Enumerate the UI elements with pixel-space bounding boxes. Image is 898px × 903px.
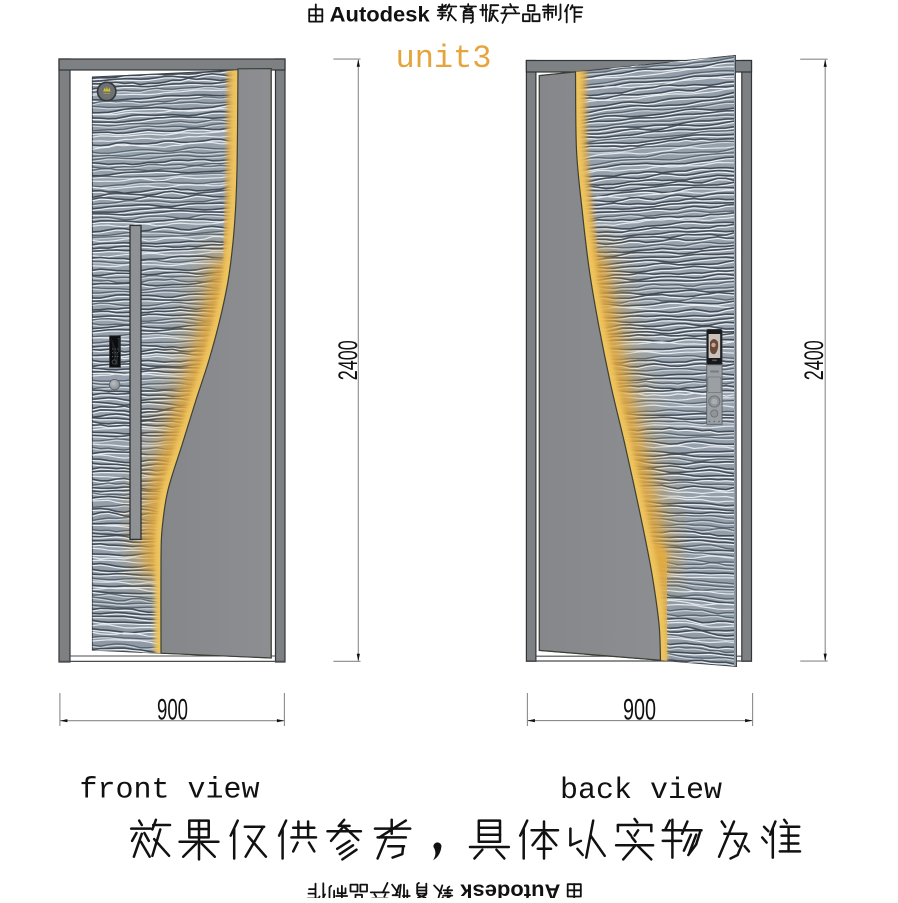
svg-text:back view: back view bbox=[560, 774, 722, 808]
svg-text:2400: 2400 bbox=[333, 340, 363, 380]
svg-text:unit3: unit3 bbox=[396, 40, 492, 77]
svg-text:900: 900 bbox=[623, 694, 656, 727]
svg-text:2400: 2400 bbox=[799, 340, 829, 380]
svg-text:Autodesk: Autodesk bbox=[330, 2, 430, 26]
svg-text:Autodesk: Autodesk bbox=[460, 880, 560, 899]
svg-text:front view: front view bbox=[80, 774, 260, 808]
svg-text:900: 900 bbox=[157, 693, 188, 726]
